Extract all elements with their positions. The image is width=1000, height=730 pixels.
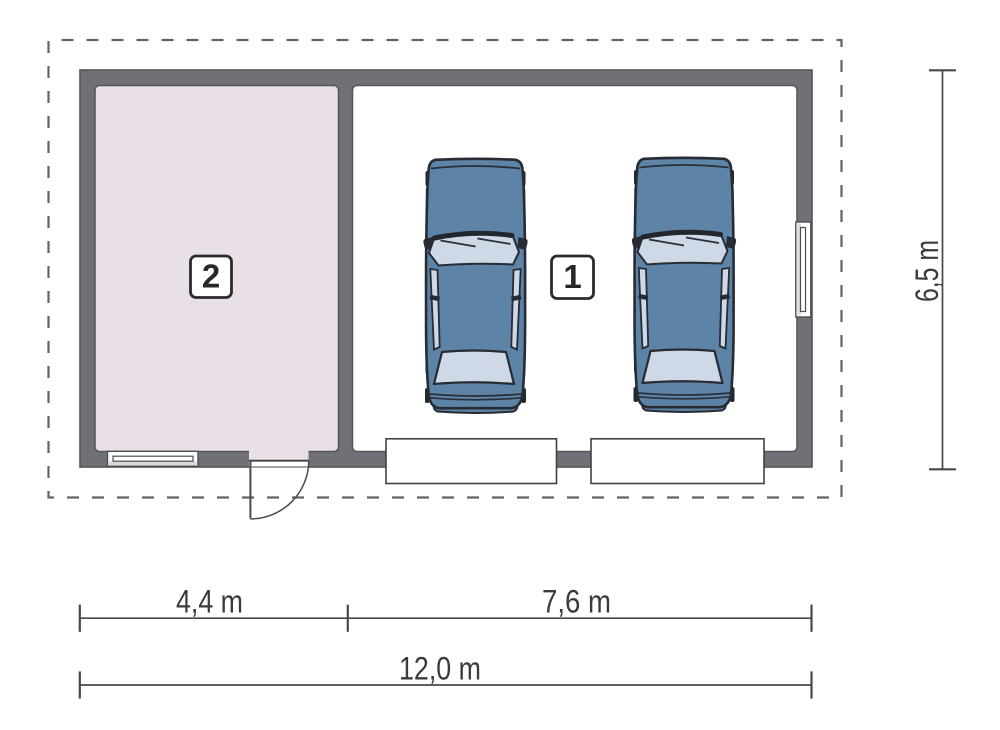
svg-text:7,6 m: 7,6 m [542, 584, 611, 620]
svg-text:4,4 m: 4,4 m [176, 584, 243, 620]
svg-text:2: 2 [202, 258, 220, 295]
svg-text:6,5 m: 6,5 m [909, 240, 945, 302]
svg-text:1: 1 [563, 258, 581, 295]
svg-text:12,0 m: 12,0 m [399, 651, 481, 687]
